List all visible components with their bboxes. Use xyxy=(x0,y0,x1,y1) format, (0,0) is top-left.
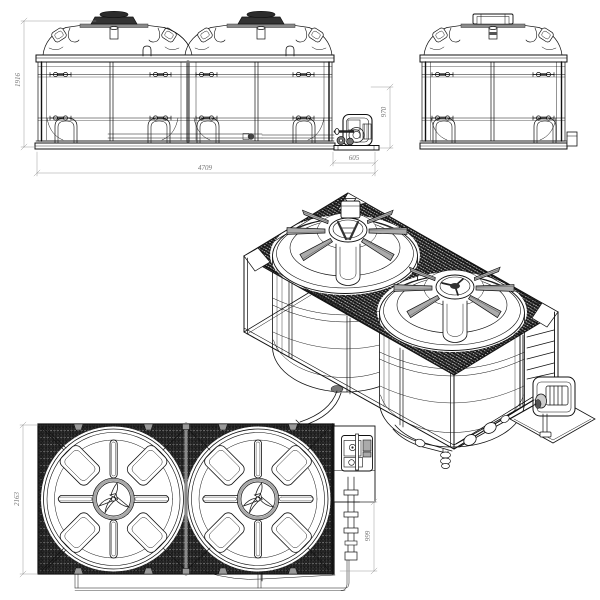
svg-text:999: 999 xyxy=(364,530,372,541)
svg-text:970: 970 xyxy=(380,106,388,117)
svg-text:1916: 1916 xyxy=(14,73,22,88)
svg-text:2163: 2163 xyxy=(13,492,21,507)
svg-text:4709: 4709 xyxy=(198,164,213,172)
svg-text:605: 605 xyxy=(349,154,360,162)
